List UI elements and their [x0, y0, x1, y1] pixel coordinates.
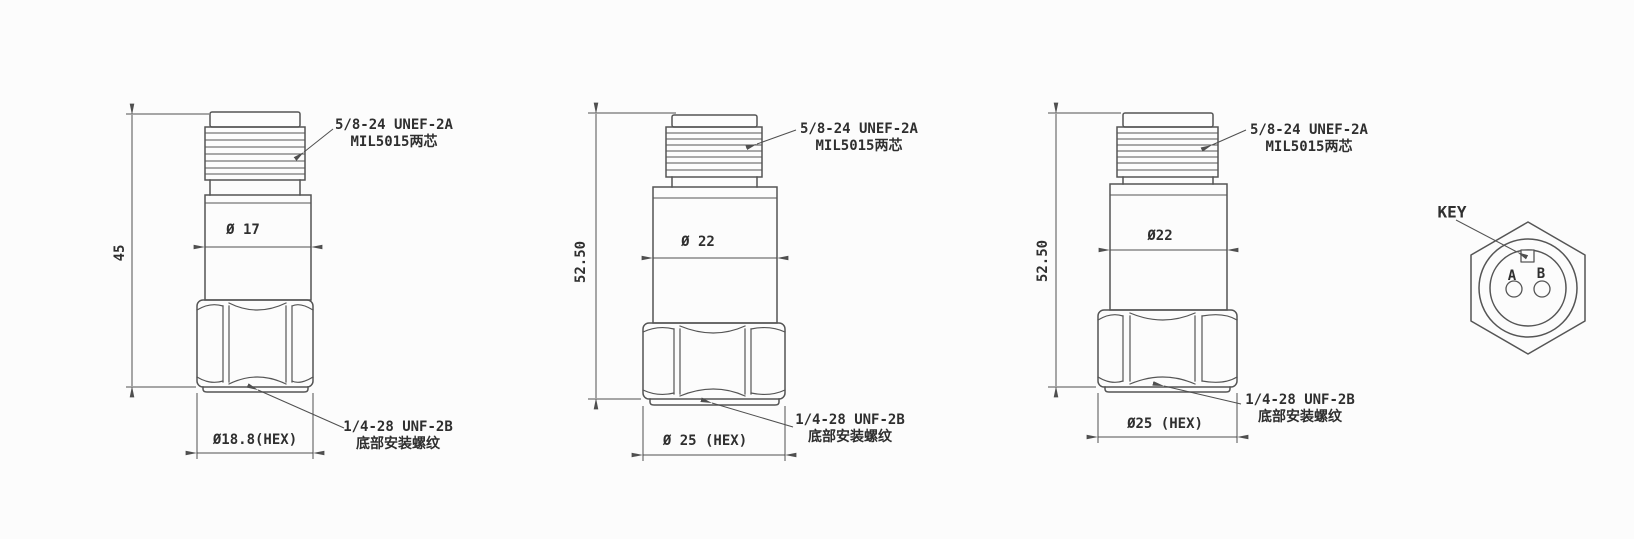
- hex-dimension-label-2: Ø 25 (HEX): [663, 433, 747, 449]
- height-dimension-label-1: 45: [112, 245, 128, 262]
- connector-thread-note-2-line2: MIL5015两芯: [793, 138, 925, 155]
- diameter-dimension-label-1: Ø 17: [226, 222, 260, 238]
- drawing-sheet: 45 Ø 17 Ø18.8(HEX) 5/8-24 UNEF-2A MIL501…: [0, 0, 1634, 539]
- hex-nut-3: [1098, 310, 1237, 387]
- connector-thread-note-3: 5/8-24 UNEF-2A MIL5015两芯: [1243, 122, 1375, 156]
- height-dimension-label-3: 52.50: [1035, 240, 1051, 282]
- connector-thread-note-3-line2: MIL5015两芯: [1243, 139, 1375, 156]
- connector-thread-note-3-line1: 5/8-24 UNEF-2A: [1243, 122, 1375, 139]
- mount-thread-note-1: 1/4-28 UNF-2B 底部安装螺纹: [332, 419, 464, 453]
- key-label: KEY: [1438, 203, 1467, 222]
- thread-lines-1: [205, 133, 305, 174]
- connector-thread-note-2: 5/8-24 UNEF-2A MIL5015两芯: [793, 121, 925, 155]
- key-leader-line: [1456, 220, 1517, 252]
- diameter-dimension-label-2: Ø 22: [681, 234, 715, 250]
- mount-thread-note-2: 1/4-28 UNF-2B 底部安装螺纹: [784, 412, 916, 446]
- connector-hex-outline: [1471, 222, 1585, 354]
- connector-cap-3: [1123, 113, 1213, 127]
- mount-thread-note-2-line1: 1/4-28 UNF-2B: [784, 412, 916, 429]
- mount-thread-note-1-line2: 底部安装螺纹: [332, 436, 464, 453]
- hex-extension-lines-1: [197, 393, 313, 459]
- height-dimension-label-2: 52.50: [573, 241, 589, 283]
- thread-leader-line-3: [1212, 130, 1246, 145]
- mount-leader-line-2: [712, 403, 793, 427]
- neck-2: [672, 177, 757, 187]
- mount-thread-note-3: 1/4-28 UNF-2B 底部安装螺纹: [1234, 392, 1366, 426]
- thread-lines-3: [1117, 133, 1218, 170]
- pin-b-label: B: [1537, 266, 1545, 282]
- sensor-dimensions-2: [588, 113, 796, 461]
- pin-b-circle: [1534, 281, 1550, 297]
- technical-drawing-canvas: [0, 0, 1634, 539]
- connector-cap-1: [210, 112, 300, 127]
- connector-key-notch: [1521, 250, 1534, 262]
- mount-thread-note-3-line2: 底部安装螺纹: [1234, 409, 1366, 426]
- connector-thread-note-1: 5/8-24 UNEF-2A MIL5015两芯: [328, 117, 460, 151]
- thread-leader-line-2: [757, 130, 796, 144]
- sensor-outline-1: [197, 112, 313, 392]
- sensor-outline-2: [643, 115, 785, 405]
- connector-cap-2: [672, 115, 757, 127]
- body-2: [653, 187, 777, 323]
- connector-thread-note-1-line2: MIL5015两芯: [328, 134, 460, 151]
- connector-thread-note-1-line1: 5/8-24 UNEF-2A: [328, 117, 460, 134]
- neck-3: [1123, 177, 1213, 184]
- thread-lines-2: [666, 133, 762, 170]
- mount-thread-note-1-line1: 1/4-28 UNF-2B: [332, 419, 464, 436]
- hex-nut-2: [643, 323, 785, 399]
- neck-1: [210, 180, 300, 195]
- connector-face-view: [1456, 220, 1585, 354]
- height-extension-lines-2: [588, 113, 676, 399]
- body-3: [1110, 184, 1227, 310]
- pin-a-label: A: [1508, 268, 1516, 284]
- hex-dimension-label-3: Ø25 (HEX): [1127, 416, 1203, 432]
- mount-thread-note-2-line2: 底部安装螺纹: [784, 429, 916, 446]
- sensor-outline-3: [1098, 113, 1237, 392]
- hex-nut-1: [197, 300, 313, 387]
- diameter-dimension-label-3: Ø22: [1147, 228, 1172, 244]
- hex-dimension-label-1: Ø18.8(HEX): [213, 432, 297, 448]
- mount-thread-note-3-line1: 1/4-28 UNF-2B: [1234, 392, 1366, 409]
- connector-thread-note-2-line1: 5/8-24 UNEF-2A: [793, 121, 925, 138]
